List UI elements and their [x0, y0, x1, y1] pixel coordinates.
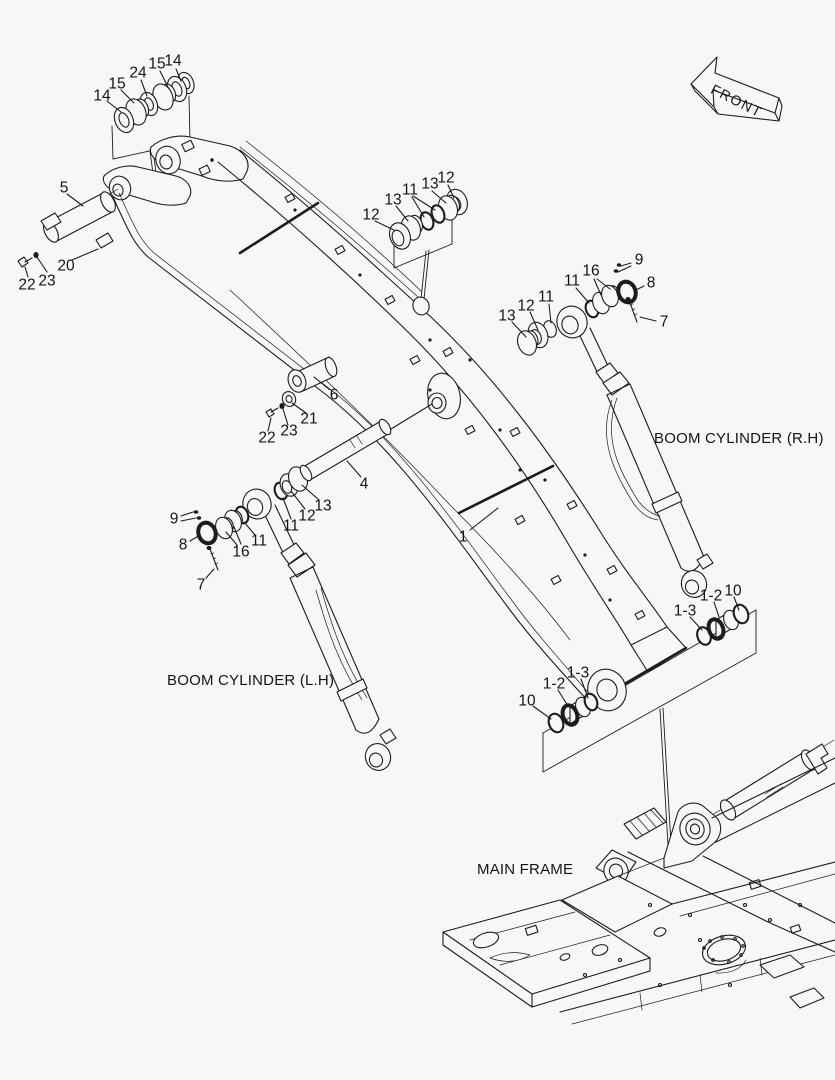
part-callout-9: 9 [635, 252, 644, 268]
boom-cylinder-lh [194, 464, 396, 774]
part-callout-13: 13 [421, 176, 438, 192]
part-callout-15: 15 [148, 56, 165, 72]
part-callout-11: 11 [283, 518, 299, 534]
part-callout-11: 11 [538, 289, 554, 305]
part-callout-13: 13 [314, 498, 331, 514]
part-callout-13: 13 [498, 308, 515, 324]
part-callout-11: 11 [564, 273, 580, 289]
part-callout-22: 22 [258, 430, 275, 446]
part-callout-21: 21 [300, 411, 317, 427]
part-callout-12: 12 [298, 508, 315, 524]
part-callout-12: 12 [362, 207, 379, 223]
part-callout-10: 10 [724, 583, 741, 599]
diagram-line-art [0, 0, 835, 1080]
part-callout-1-2: 1-2 [700, 588, 722, 604]
part-callout-12: 12 [517, 298, 534, 314]
part-callout-14: 14 [164, 53, 181, 69]
front-arrow-icon [691, 57, 782, 121]
bushing-6-group [266, 356, 339, 417]
part-callout-6: 6 [330, 387, 339, 403]
part-callout-8: 8 [647, 275, 656, 291]
part-callout-23: 23 [38, 273, 55, 289]
part-callout-1: 1 [459, 529, 468, 545]
part-callout-1-2: 1-2 [543, 676, 565, 692]
part-callout-1-3: 1-3 [674, 603, 696, 619]
part-callout-7: 7 [197, 577, 206, 593]
boom-parts-diagram: 1415241514520222312131113121312111116987… [0, 0, 835, 1080]
part-callout-9: 9 [170, 511, 179, 527]
part-callout-11: 11 [402, 182, 418, 198]
part-callout-8: 8 [179, 537, 188, 553]
foot-bushings-bottom [546, 692, 599, 734]
part-callout-4: 4 [360, 476, 369, 492]
part-callout-15: 15 [108, 76, 125, 92]
part-callout-22: 22 [18, 277, 35, 293]
label-boom-cylinder-lh: BOOM CYLINDER (L.H) [167, 672, 334, 689]
pin-5-group [18, 189, 118, 267]
part-callout-11: 11 [251, 533, 267, 549]
part-callout-1-3: 1-3 [567, 665, 589, 681]
part-callout-7: 7 [660, 314, 669, 330]
foot-bushings-right [695, 603, 751, 647]
part-callout-10: 10 [518, 693, 535, 709]
label-main-frame: MAIN FRAME [477, 861, 573, 878]
part-callout-24: 24 [129, 65, 146, 81]
part-callout-13: 13 [384, 192, 401, 208]
part-callout-16: 16 [582, 263, 599, 279]
part-callout-12: 12 [437, 170, 454, 186]
label-boom-cylinder-rh: BOOM CYLINDER (R.H) [654, 430, 824, 447]
part-callout-5: 5 [60, 180, 69, 196]
part-callout-16: 16 [232, 544, 249, 560]
main-frame-drawing [443, 740, 835, 1024]
part-callout-23: 23 [280, 423, 297, 439]
part-callout-20: 20 [57, 258, 74, 274]
